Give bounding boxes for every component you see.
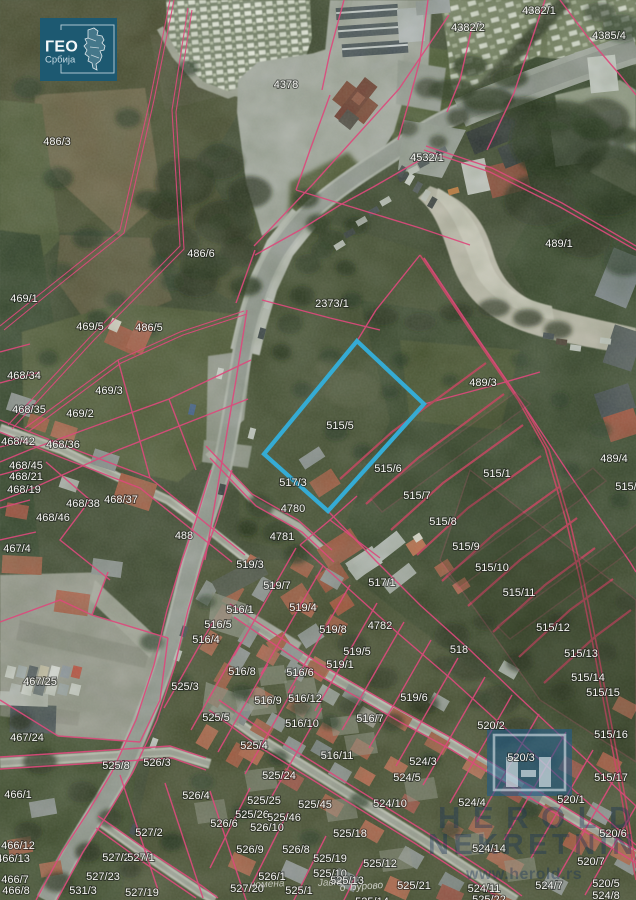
svg-text:516/9: 516/9 xyxy=(254,695,282,707)
svg-text:519/6: 519/6 xyxy=(400,692,428,704)
svg-text:525/14: 525/14 xyxy=(355,896,389,900)
svg-text:520/7: 520/7 xyxy=(577,856,605,868)
svg-text:ГЕО: ГЕО xyxy=(45,39,78,56)
svg-text:516/4: 516/4 xyxy=(192,634,220,646)
svg-text:525/19: 525/19 xyxy=(313,853,347,865)
svg-text:466/13: 466/13 xyxy=(0,853,30,865)
svg-text:515/16: 515/16 xyxy=(594,729,628,741)
svg-text:517/1: 517/1 xyxy=(368,577,396,589)
svg-text:515/1: 515/1 xyxy=(483,468,511,480)
svg-text:524/4: 524/4 xyxy=(458,797,486,809)
svg-text:525/5: 525/5 xyxy=(202,712,230,724)
svg-text:4781: 4781 xyxy=(270,531,294,543)
svg-text:525/22: 525/22 xyxy=(472,894,506,900)
svg-text:519/3: 519/3 xyxy=(236,559,264,571)
svg-text:526/4: 526/4 xyxy=(182,790,210,802)
svg-text:525/45: 525/45 xyxy=(298,799,332,811)
svg-text:526/3: 526/3 xyxy=(143,757,171,769)
svg-text:520/1: 520/1 xyxy=(557,794,585,806)
svg-text:519/1: 519/1 xyxy=(326,659,354,671)
svg-text:469/3: 469/3 xyxy=(95,385,123,397)
svg-text:486/5: 486/5 xyxy=(135,322,163,334)
svg-text:469/2: 469/2 xyxy=(66,408,94,420)
svg-text:4385/4: 4385/4 xyxy=(592,30,626,42)
svg-text:527/2: 527/2 xyxy=(102,852,130,864)
svg-text:525/21: 525/21 xyxy=(397,880,431,892)
svg-text:525/1: 525/1 xyxy=(285,885,313,897)
svg-text:517/3: 517/3 xyxy=(279,477,307,489)
svg-text:488: 488 xyxy=(175,530,193,542)
svg-text:469/5: 469/5 xyxy=(76,321,104,333)
svg-text:515/2: 515/2 xyxy=(615,481,636,493)
svg-text:4382/2: 4382/2 xyxy=(451,22,485,34)
svg-text:468/38: 468/38 xyxy=(66,498,100,510)
svg-text:489/3: 489/3 xyxy=(469,377,497,389)
svg-text:525/3: 525/3 xyxy=(171,681,199,693)
svg-text:516/12: 516/12 xyxy=(288,693,322,705)
svg-text:519/8: 519/8 xyxy=(319,624,347,636)
svg-text:516/8: 516/8 xyxy=(228,666,256,678)
svg-text:468/46: 468/46 xyxy=(36,512,70,524)
svg-text:2373/1: 2373/1 xyxy=(315,298,349,310)
svg-text:467/24: 467/24 xyxy=(10,732,44,744)
svg-text:516/6: 516/6 xyxy=(286,667,314,679)
svg-text:486/3: 486/3 xyxy=(43,136,71,148)
svg-text:531/3: 531/3 xyxy=(69,885,97,897)
svg-text:527/2: 527/2 xyxy=(135,827,163,839)
svg-text:526/6: 526/6 xyxy=(210,818,238,830)
svg-text:515/6: 515/6 xyxy=(374,463,402,475)
svg-text:527/19: 527/19 xyxy=(125,887,159,899)
svg-text:525/12: 525/12 xyxy=(363,858,397,870)
svg-text:519/7: 519/7 xyxy=(263,580,291,592)
svg-text:Србија: Србија xyxy=(45,55,76,66)
svg-text:527/1: 527/1 xyxy=(127,852,155,864)
svg-text:466/12: 466/12 xyxy=(1,840,35,852)
svg-text:515/5: 515/5 xyxy=(326,420,354,432)
svg-text:524/3: 524/3 xyxy=(409,756,437,768)
svg-text:469/1: 469/1 xyxy=(10,293,38,305)
svg-text:525/24: 525/24 xyxy=(262,770,296,782)
svg-text:515/12: 515/12 xyxy=(536,622,570,634)
svg-text:516/10: 516/10 xyxy=(285,718,319,730)
svg-text:526/8: 526/8 xyxy=(282,844,310,856)
svg-text:468/36: 468/36 xyxy=(46,439,80,451)
svg-text:519/4: 519/4 xyxy=(289,602,317,614)
svg-text:515/7: 515/7 xyxy=(403,490,431,502)
svg-text:515/14: 515/14 xyxy=(571,672,605,684)
svg-text:526/10: 526/10 xyxy=(250,822,284,834)
svg-text:526/9: 526/9 xyxy=(236,844,264,856)
svg-text:4782: 4782 xyxy=(368,620,392,632)
svg-text:468/34: 468/34 xyxy=(7,370,41,382)
svg-text:468/37: 468/37 xyxy=(104,494,138,506)
svg-text:467/25: 467/25 xyxy=(23,676,57,688)
svg-text:519/5: 519/5 xyxy=(343,646,371,658)
svg-text:518: 518 xyxy=(450,644,468,656)
svg-text:520/3: 520/3 xyxy=(507,752,535,764)
svg-text:515/11: 515/11 xyxy=(503,587,536,599)
svg-text:516/7: 516/7 xyxy=(356,713,384,725)
svg-text:4378: 4378 xyxy=(274,79,298,91)
svg-text:4382/1: 4382/1 xyxy=(522,5,556,17)
svg-text:467/4: 467/4 xyxy=(3,543,31,555)
svg-text:525/25: 525/25 xyxy=(247,795,281,807)
svg-text:516/5: 516/5 xyxy=(204,619,232,631)
svg-text:527/23: 527/23 xyxy=(86,871,120,883)
svg-text:515/13: 515/13 xyxy=(564,648,598,660)
svg-text:524/10: 524/10 xyxy=(373,798,407,810)
svg-text:www.herold.rs: www.herold.rs xyxy=(465,866,582,883)
svg-text:4780: 4780 xyxy=(281,503,305,515)
svg-text:466/8: 466/8 xyxy=(2,885,30,897)
svg-text:516/1: 516/1 xyxy=(226,604,254,616)
svg-text:525/4: 525/4 xyxy=(240,740,268,752)
svg-text:4532/1: 4532/1 xyxy=(410,152,444,164)
svg-text:520/5: 520/5 xyxy=(592,878,620,890)
svg-text:489/1: 489/1 xyxy=(545,238,573,250)
svg-text:524/7: 524/7 xyxy=(535,880,563,892)
svg-text:524/5: 524/5 xyxy=(393,772,421,784)
svg-text:466/1: 466/1 xyxy=(4,789,32,801)
svg-text:468/19: 468/19 xyxy=(7,484,41,496)
svg-text:468/35: 468/35 xyxy=(12,404,46,416)
svg-text:515/17: 515/17 xyxy=(594,772,628,784)
svg-text:468/21: 468/21 xyxy=(9,471,43,483)
svg-text:520/2: 520/2 xyxy=(477,720,505,732)
svg-text:516/11: 516/11 xyxy=(321,750,354,762)
svg-text:486/6: 486/6 xyxy=(187,248,215,260)
svg-text:515/15: 515/15 xyxy=(586,687,620,699)
svg-text:524/14: 524/14 xyxy=(472,843,506,855)
svg-text:524/8: 524/8 xyxy=(592,890,620,900)
svg-text:468/42: 468/42 xyxy=(1,436,35,448)
svg-text:номена: номена xyxy=(250,878,286,891)
svg-text:489/4: 489/4 xyxy=(600,453,628,465)
svg-text:525/18: 525/18 xyxy=(333,828,367,840)
svg-text:515/10: 515/10 xyxy=(475,562,509,574)
svg-text:515/8: 515/8 xyxy=(429,516,457,528)
svg-text:515/9: 515/9 xyxy=(452,541,480,553)
svg-text:525/8: 525/8 xyxy=(102,760,130,772)
svg-text:525/26: 525/26 xyxy=(235,809,269,821)
svg-text:520/6: 520/6 xyxy=(599,828,627,840)
